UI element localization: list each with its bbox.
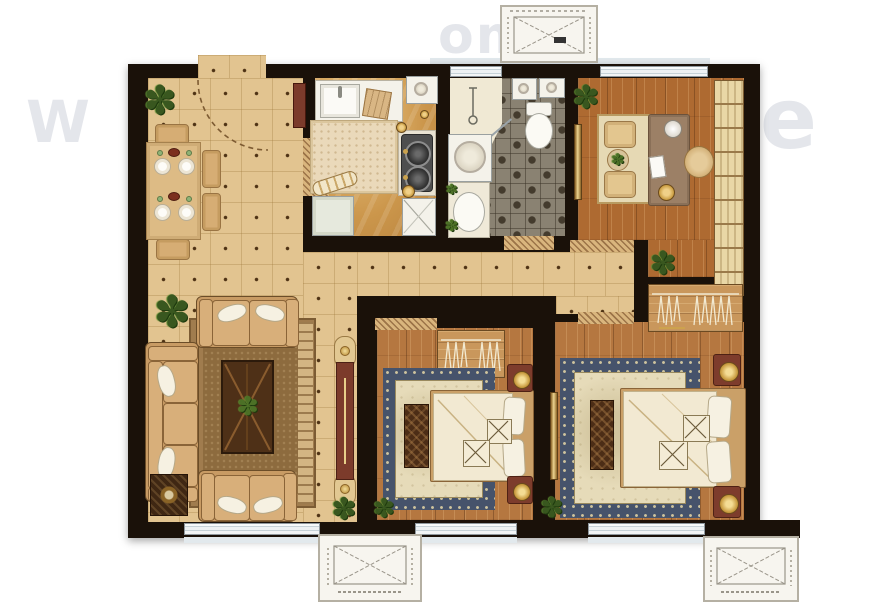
toilet-bowl: [525, 113, 553, 149]
vanity-plant: ✽: [446, 183, 458, 197]
desk-bowl: [658, 184, 675, 201]
dining-chair: [202, 150, 221, 188]
laptop: [649, 155, 667, 179]
table-plant: ✽: [611, 152, 624, 168]
potted-plant: ✽: [373, 496, 395, 522]
dinner-plate: [178, 204, 195, 221]
bed-end-bench: [590, 400, 614, 470]
potted-plant: ✽: [650, 247, 677, 279]
dinner-plate: [154, 204, 171, 221]
bedroom2-bed: [430, 390, 534, 482]
gas-stove: [401, 134, 433, 192]
bowl: [402, 185, 415, 198]
sink-bowl-icon: [518, 83, 529, 94]
table-lamp-icon: [719, 494, 739, 514]
table-lamp-icon: [513, 483, 531, 501]
table-lamp-icon: [513, 371, 531, 389]
quilt-motif: [487, 419, 512, 444]
dining-chair: [156, 239, 190, 260]
sink-bowl-icon: [546, 82, 557, 93]
study-armchair: [604, 121, 636, 148]
potted-plant: ✽: [540, 494, 563, 522]
potted-plant: ✽: [573, 81, 600, 113]
dinner-plate: [178, 158, 195, 175]
standing-mirror: [574, 124, 582, 200]
loveseat-top: [196, 296, 298, 348]
master-bed: [620, 388, 746, 488]
ac-platform-bottom-right: [703, 536, 799, 602]
cutting-board: [362, 88, 392, 120]
table-plant: ✽: [237, 394, 259, 420]
hangers-icon: [649, 285, 742, 331]
quilt-motif: [659, 441, 688, 470]
ac-platform-bottom-left: [318, 534, 422, 602]
desk-lamp: [664, 120, 682, 138]
floor-plan-image: W om e e: [0, 0, 895, 604]
bedroom2-door-threshold: [375, 318, 437, 330]
cup: [186, 196, 192, 202]
pillow: [502, 438, 526, 477]
living-rug-border-pattern: [298, 322, 313, 504]
watermark-letter: e: [760, 70, 819, 168]
bathroom-door-threshold: [504, 236, 554, 250]
window-sill: [415, 537, 517, 543]
washer-drum: [454, 141, 486, 173]
dinner-plate: [154, 158, 171, 175]
nightstand: [713, 486, 741, 518]
window-master-bottom: [588, 523, 705, 535]
potted-plant: ✽: [154, 291, 191, 335]
quilt-motif: [463, 440, 490, 467]
loveseat-bottom: [198, 470, 296, 522]
cup: [157, 150, 163, 156]
dining-chair: [202, 193, 221, 231]
burner-knob: [403, 175, 408, 180]
side-table: [150, 474, 188, 516]
window-living-bottom: [184, 523, 320, 535]
nightstand: [507, 476, 533, 504]
floor-entry-threshold: [198, 55, 266, 78]
bed-end-bench: [404, 404, 429, 468]
hood-circle-icon: [414, 82, 428, 96]
study-armchair: [604, 171, 636, 198]
refrigerator: [402, 198, 436, 236]
study-door-threshold: [570, 240, 634, 252]
shower-head-icon: [466, 86, 480, 126]
entry-door-leaf: [293, 83, 306, 128]
window-bedroom2-bottom: [415, 523, 517, 535]
nightstand: [507, 364, 533, 392]
cup: [186, 150, 192, 156]
cup: [157, 196, 163, 202]
potted-plant: ✽: [331, 495, 356, 525]
window-sill: [588, 537, 705, 543]
serving-dish: [168, 148, 180, 157]
burner-knob: [403, 149, 408, 154]
dishwasher: [312, 196, 354, 236]
quilt-motif: [683, 415, 710, 442]
master-door-threshold: [578, 312, 634, 324]
burner-icon: [405, 141, 431, 167]
ac-platform-top: [500, 5, 598, 63]
bookshelf: [714, 80, 744, 296]
window-sill: [184, 537, 320, 543]
potted-plant: ✽: [143, 81, 177, 121]
bowl: [396, 122, 407, 133]
bowl: [420, 110, 429, 119]
window-study-top: [600, 66, 708, 77]
panel-knob: [340, 346, 350, 356]
vanity-plant: ✽: [445, 218, 458, 234]
serving-dish: [168, 192, 180, 201]
floor-hallway: [357, 252, 634, 296]
standing-mirror: [550, 392, 558, 480]
faucet-icon: [338, 86, 342, 98]
desk-chair: [684, 146, 714, 178]
pillow: [706, 440, 733, 484]
table-lamp-icon: [719, 362, 739, 382]
nightstand: [713, 354, 741, 386]
window-bathroom-top: [450, 66, 502, 77]
closet-master: [648, 284, 743, 332]
watermark-letter: W: [26, 88, 92, 156]
panel-gold-line: [344, 378, 346, 464]
